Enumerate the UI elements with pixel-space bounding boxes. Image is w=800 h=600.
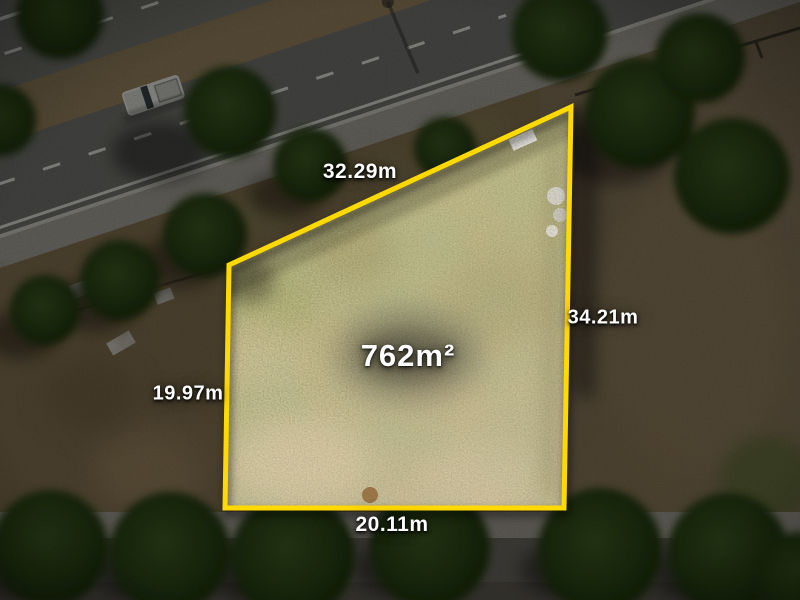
- area-label: 762m²: [361, 338, 456, 374]
- dimension-label-left: 19.97m: [153, 383, 224, 406]
- dimension-label-right: 34.21m: [568, 307, 639, 330]
- aerial-lot-photo: 32.29m 34.21m 19.97m 20.11m 762m²: [0, 0, 800, 600]
- aerial-scene: [0, 0, 800, 600]
- dimension-label-bottom: 20.11m: [355, 513, 428, 537]
- dimension-label-top: 32.29m: [323, 160, 397, 184]
